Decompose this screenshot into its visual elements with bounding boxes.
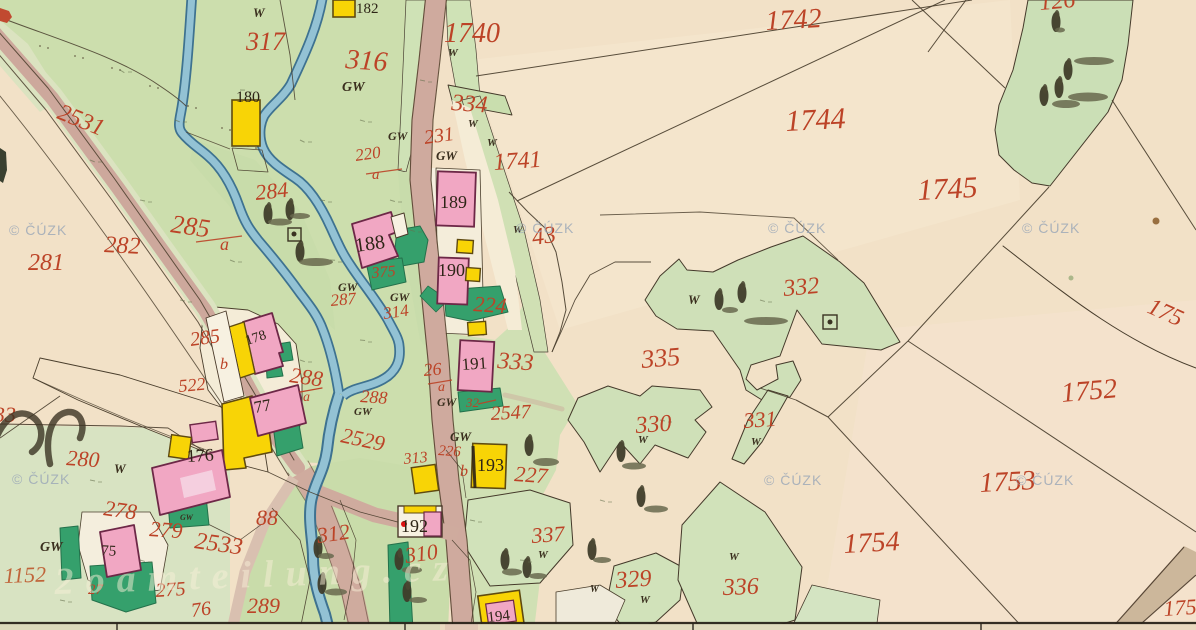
svg-text:1744: 1744 <box>785 102 847 138</box>
svg-text:W: W <box>538 549 549 561</box>
svg-text:336: 336 <box>721 574 759 601</box>
svg-text:522: 522 <box>178 374 207 396</box>
svg-text:1754: 1754 <box>843 526 901 560</box>
svg-text:289: 289 <box>247 593 280 618</box>
svg-text:GW: GW <box>437 395 458 409</box>
svg-text:329: 329 <box>614 566 653 595</box>
svg-text:190: 190 <box>438 260 465 280</box>
svg-text:182: 182 <box>356 1 379 17</box>
svg-text:GW: GW <box>354 406 373 418</box>
svg-text:b: b <box>220 356 228 373</box>
svg-text:337: 337 <box>530 521 567 548</box>
svg-text:GW: GW <box>180 513 194 522</box>
svg-text:285: 285 <box>169 209 212 243</box>
svg-text:a: a <box>372 167 380 183</box>
svg-text:288: 288 <box>288 362 324 391</box>
svg-text:88: 88 <box>256 505 278 530</box>
svg-text:a: a <box>220 234 229 254</box>
svg-text:335: 335 <box>639 342 681 374</box>
svg-text:W: W <box>448 47 459 59</box>
svg-text:W: W <box>729 551 740 563</box>
svg-text:317: 317 <box>245 27 286 56</box>
svg-text:W: W <box>487 137 498 149</box>
svg-text:GW: GW <box>40 540 64 555</box>
svg-text:176: 176 <box>186 445 214 466</box>
svg-text:278: 278 <box>102 495 138 524</box>
svg-text:193: 193 <box>477 455 504 475</box>
svg-text:W: W <box>751 436 762 448</box>
svg-text:281: 281 <box>28 250 64 276</box>
svg-text:1752: 1752 <box>1060 373 1118 409</box>
svg-text:191: 191 <box>461 353 488 374</box>
svg-text:332: 332 <box>781 273 820 302</box>
svg-text:180: 180 <box>236 89 260 106</box>
svg-text:192: 192 <box>401 516 428 536</box>
svg-text:W: W <box>253 5 266 20</box>
svg-text:312: 312 <box>314 519 351 548</box>
svg-text:333: 333 <box>496 348 535 377</box>
svg-text:282: 282 <box>104 232 141 260</box>
svg-text:© ČÚZK: © ČÚZK <box>12 471 70 487</box>
svg-text:1745: 1745 <box>917 171 979 207</box>
svg-text:b: b <box>460 463 468 480</box>
svg-text:316: 316 <box>344 44 389 78</box>
svg-text:313: 313 <box>402 449 428 468</box>
svg-text:W: W <box>590 584 600 595</box>
svg-text:26: 26 <box>423 358 443 379</box>
svg-text:W: W <box>114 461 127 476</box>
svg-text:2547: 2547 <box>490 401 532 425</box>
svg-text:220: 220 <box>354 143 382 165</box>
svg-text:GW: GW <box>450 429 472 444</box>
svg-text:© ČÚZK: © ČÚZK <box>768 220 826 236</box>
svg-text:175: 175 <box>1163 594 1196 621</box>
svg-text:224: 224 <box>473 291 508 318</box>
svg-text:W: W <box>688 292 701 307</box>
svg-text:226: 226 <box>438 443 462 461</box>
svg-text:© ČÚZK: © ČÚZK <box>516 220 574 236</box>
svg-text:© ČÚZK: © ČÚZK <box>1022 220 1080 236</box>
svg-text:1152: 1152 <box>3 562 46 588</box>
svg-text:288: 288 <box>360 386 388 408</box>
svg-text:1742: 1742 <box>765 3 823 37</box>
svg-text:334: 334 <box>450 90 489 119</box>
svg-text:280: 280 <box>66 445 101 472</box>
svg-text:GW: GW <box>436 148 458 163</box>
svg-text:© ČÚZK: © ČÚZK <box>1016 472 1074 488</box>
svg-text:227: 227 <box>514 461 550 488</box>
svg-text:189: 189 <box>440 192 467 212</box>
svg-text:a: a <box>303 390 310 405</box>
svg-text:GW: GW <box>390 290 411 304</box>
svg-text:1741: 1741 <box>493 147 543 176</box>
svg-text:284: 284 <box>254 177 289 205</box>
svg-text:GW: GW <box>338 280 359 294</box>
svg-text:GW: GW <box>388 129 409 143</box>
svg-text:375: 375 <box>370 263 396 282</box>
svg-text:© ČÚZK: © ČÚZK <box>9 222 67 238</box>
svg-text:1740: 1740 <box>444 18 500 49</box>
svg-text:285: 285 <box>189 325 222 351</box>
svg-text:W: W <box>640 594 651 606</box>
svg-text:231: 231 <box>423 123 456 149</box>
svg-text:75: 75 <box>101 543 117 560</box>
svg-text:GW: GW <box>342 80 366 95</box>
svg-text:32: 32 <box>465 395 480 410</box>
svg-text:W: W <box>468 118 479 130</box>
svg-text:331: 331 <box>742 406 778 433</box>
svg-text:W: W <box>638 434 649 446</box>
svg-text:188: 188 <box>354 231 387 257</box>
svg-text:279: 279 <box>149 516 184 543</box>
svg-text:© ČÚZK: © ČÚZK <box>764 472 822 488</box>
svg-text:76: 76 <box>190 597 213 622</box>
